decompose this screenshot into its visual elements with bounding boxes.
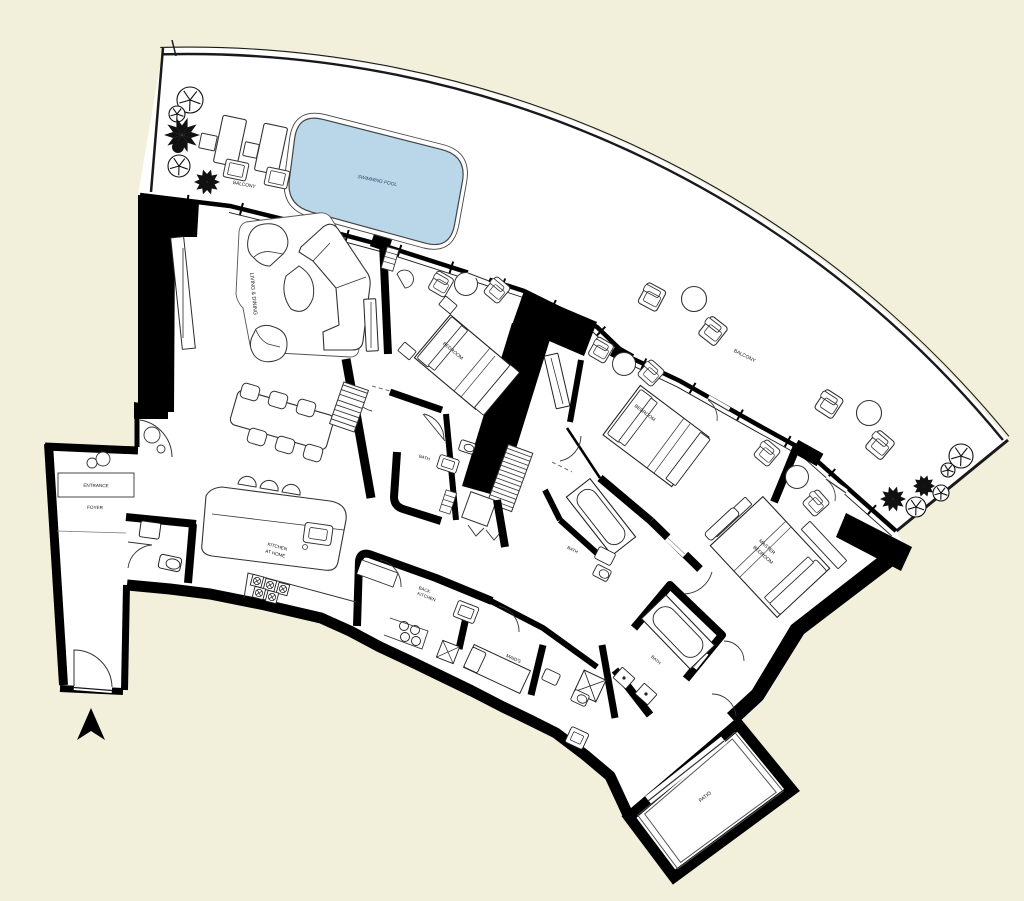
svg-text:ENTRANCE: ENTRANCE xyxy=(83,483,108,488)
svg-text:FOYER: FOYER xyxy=(87,505,104,510)
